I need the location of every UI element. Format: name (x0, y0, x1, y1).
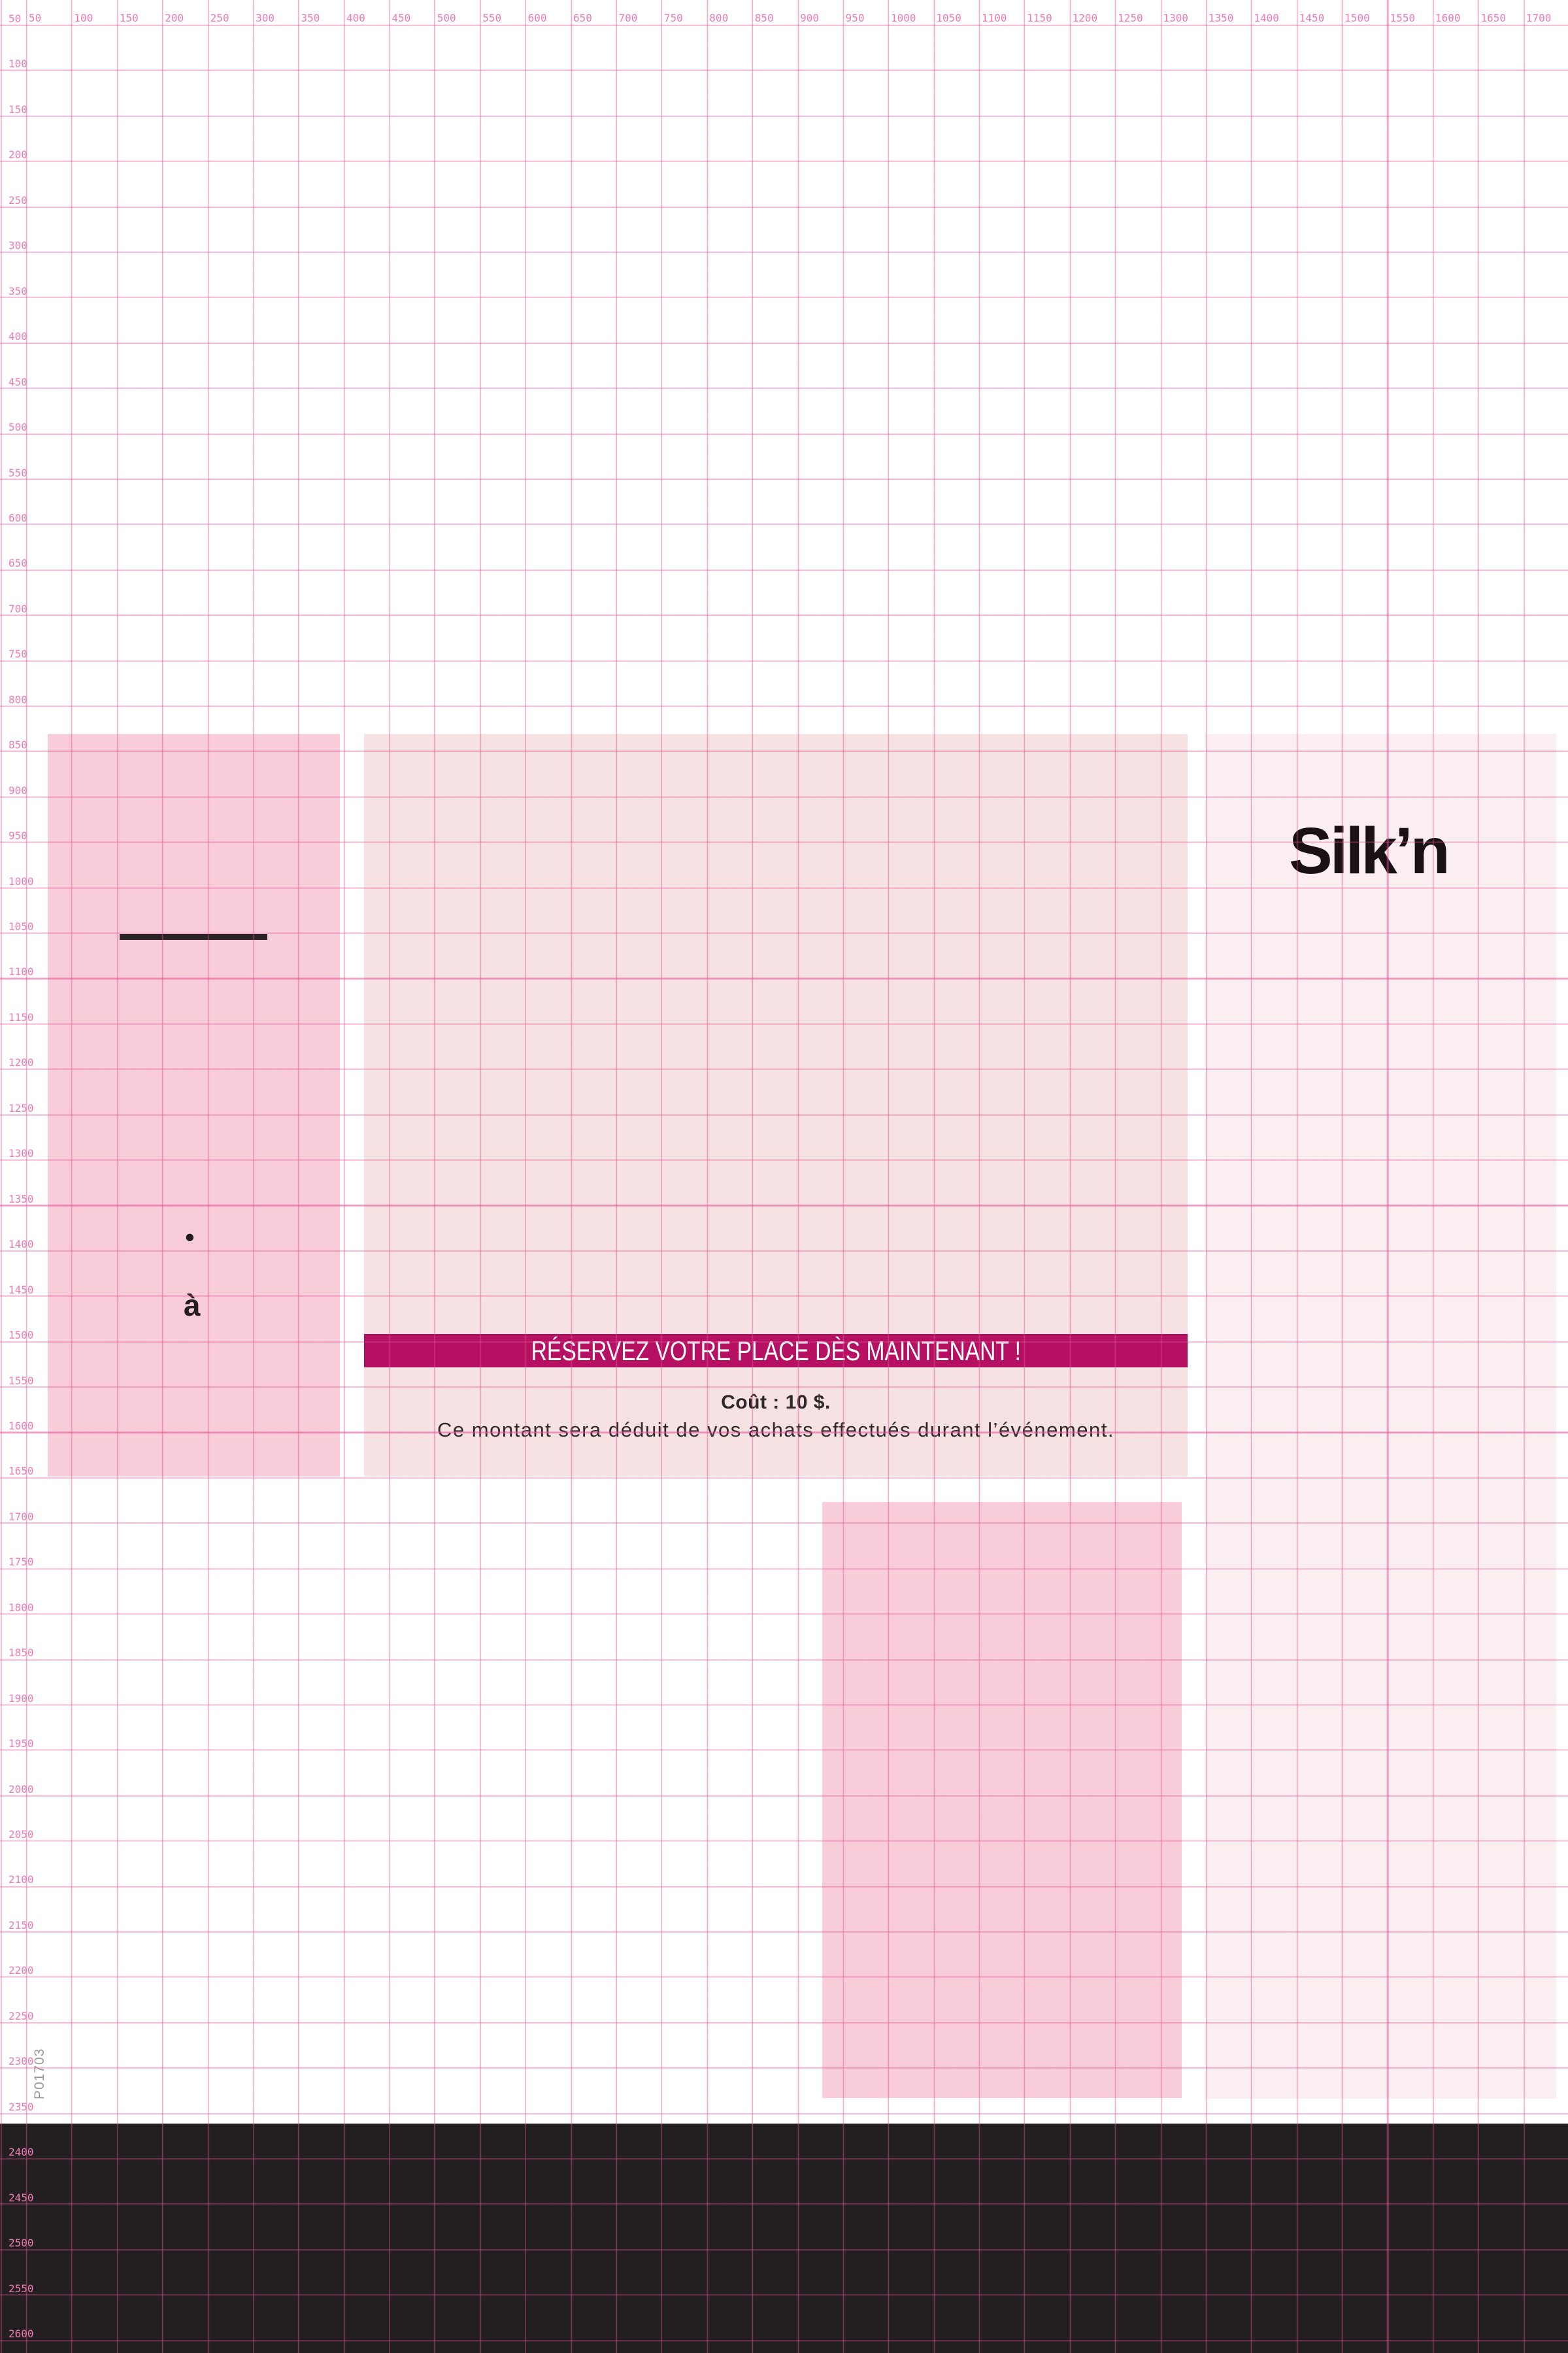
left-ruler-label: 750 (8, 649, 27, 659)
left-ruler-label: 900 (8, 786, 27, 796)
top-ruler-label: 900 (800, 13, 819, 24)
left-ruler-label: 1050 (8, 922, 34, 932)
left-ruler-label: 1300 (8, 1148, 34, 1159)
left-placeholder-block (48, 734, 340, 1477)
top-ruler-label: 550 (482, 13, 501, 24)
left-ruler-label: 1200 (8, 1058, 34, 1068)
left-ruler-label: 650 (8, 558, 27, 569)
left-ruler-label: 150 (8, 105, 27, 115)
left-ruler-label: 1850 (8, 1648, 34, 1658)
top-ruler-label: 1400 (1254, 13, 1279, 24)
top-ruler-label: 850 (755, 13, 774, 24)
silkn-logo-text: Silk’n (1289, 814, 1448, 888)
left-ruler-label: 1550 (8, 1376, 34, 1386)
left-ruler-label: 850 (8, 740, 27, 750)
top-ruler-label: 150 (120, 13, 139, 24)
left-ruler-label: 1250 (8, 1103, 34, 1114)
left-ruler-label: 1100 (8, 967, 34, 977)
top-ruler-label: 50 (29, 13, 41, 24)
left-ruler-label: 400 (8, 331, 27, 342)
top-ruler-label: 1500 (1344, 13, 1370, 24)
registered-mark: ® (1417, 833, 1424, 898)
top-ruler-label: 450 (392, 13, 410, 24)
left-ruler-label: 350 (8, 286, 27, 297)
top-ruler-label: 400 (346, 13, 365, 24)
top-ruler-label: 750 (664, 13, 683, 24)
footer-bar (0, 2124, 1568, 2353)
left-ruler-label: 1750 (8, 1557, 34, 1567)
reservation-banner: RÉSERVEZ VOTRE PLACE DÈS MAINTENANT ! (364, 1334, 1188, 1367)
right-placeholder-block (1206, 734, 1556, 2099)
top-ruler-label: 1650 (1480, 13, 1506, 24)
left-ruler-label: 1650 (8, 1466, 34, 1477)
top-ruler-label: 600 (528, 13, 547, 24)
left-ruler-label: 500 (8, 422, 27, 433)
top-ruler-label: 1300 (1163, 13, 1189, 24)
left-ruler-label: 450 (8, 377, 27, 388)
top-ruler-label: 500 (437, 13, 456, 24)
top-ruler-label: 700 (618, 13, 637, 24)
bullet-marker: • (185, 1224, 195, 1251)
design-canvas: • à Silk’n ® RÉSERVEZ VOTRE PLACE DÈS MA… (0, 0, 1568, 2353)
left-ruler-label: 250 (8, 195, 27, 206)
left-ruler-label: 1800 (8, 1603, 34, 1613)
top-ruler-label: 1000 (891, 13, 916, 24)
top-ruler-label: 1600 (1435, 13, 1461, 24)
left-ruler-label: 800 (8, 695, 27, 705)
left-ruler-label: 100 (8, 59, 27, 69)
left-ruler-label: 2050 (8, 1829, 34, 1840)
top-ruler-label: 200 (165, 13, 184, 24)
top-ruler-label: 1150 (1027, 13, 1052, 24)
top-ruler-label: 650 (573, 13, 592, 24)
left-ruler-label: 1000 (8, 876, 34, 887)
a-label: à (184, 1289, 201, 1322)
top-ruler-label: 250 (210, 13, 229, 24)
left-ruler-label: 2000 (8, 1784, 34, 1795)
left-ruler-label: 1500 (8, 1330, 34, 1341)
top-ruler-label: 1550 (1390, 13, 1416, 24)
left-ruler-label: 1950 (8, 1739, 34, 1749)
bottom-placeholder-block (822, 1502, 1182, 2098)
top-ruler-label: 300 (256, 13, 275, 24)
top-ruler-label: 1450 (1299, 13, 1325, 24)
top-ruler-label: 100 (74, 13, 93, 24)
cost-subtitle: Ce montant sera déduit de vos achats eff… (364, 1418, 1188, 1442)
left-ruler-label: 50 (8, 14, 21, 24)
left-ruler-label: 1600 (8, 1421, 34, 1431)
left-ruler-label: 1400 (8, 1239, 34, 1250)
silkn-logo: Silk’n ® (1289, 818, 1448, 884)
left-ruler-label: 2150 (8, 1920, 34, 1931)
left-ruler-label: 1450 (8, 1285, 34, 1295)
top-ruler-label: 350 (301, 13, 320, 24)
left-ruler-label: 2200 (8, 1965, 34, 1976)
left-ruler-label: 2350 (8, 2102, 34, 2112)
top-ruler-label: 1700 (1526, 13, 1552, 24)
left-ruler-label: 2100 (8, 1875, 34, 1885)
left-ruler-label: 1900 (8, 1694, 34, 1704)
left-ruler-label: 2250 (8, 2011, 34, 2022)
left-ruler-label: 600 (8, 513, 27, 524)
top-ruler-label: 950 (846, 13, 865, 24)
left-ruler-label: 1150 (8, 1012, 34, 1023)
dash-rule (120, 934, 267, 940)
top-ruler-label: 1250 (1118, 13, 1143, 24)
top-ruler-label: 1350 (1209, 13, 1234, 24)
print-code: P01703 (33, 2048, 46, 2099)
top-ruler-label: 1050 (936, 13, 961, 24)
left-ruler-label: 550 (8, 468, 27, 478)
top-ruler-label: 800 (709, 13, 728, 24)
cost-title: Coût : 10 $. (364, 1391, 1188, 1414)
left-ruler-label: 300 (8, 241, 27, 251)
left-ruler-label: 1350 (8, 1194, 34, 1205)
left-ruler-label: 1700 (8, 1512, 34, 1522)
top-ruler-label: 1200 (1073, 13, 1098, 24)
left-ruler-label: 700 (8, 604, 27, 614)
left-ruler-label: 950 (8, 831, 27, 841)
left-ruler-label: 200 (8, 150, 27, 160)
top-ruler-label: 1100 (982, 13, 1007, 24)
pricing-block: Coût : 10 $. Ce montant sera déduit de v… (364, 1391, 1188, 1442)
banner-text: RÉSERVEZ VOTRE PLACE DÈS MAINTENANT ! (531, 1337, 1020, 1365)
left-ruler-label: 2300 (8, 2056, 34, 2067)
